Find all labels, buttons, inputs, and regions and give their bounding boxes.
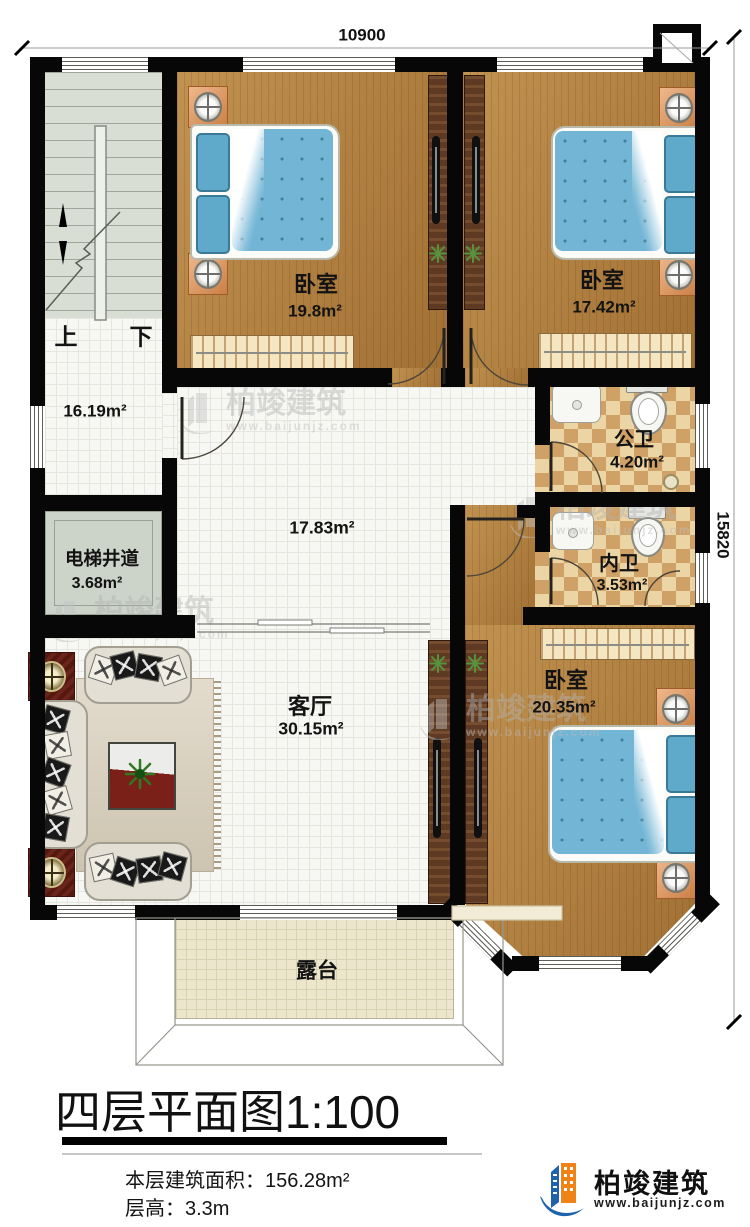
wall-private-bath-west [535, 507, 550, 552]
cushion [42, 785, 73, 816]
nightstand [188, 86, 228, 128]
wall-elevator-north [45, 495, 177, 511]
private-bath-door-gap [535, 552, 550, 607]
sink [552, 383, 601, 423]
label-stair-hall-area: 16.19m² [63, 403, 126, 422]
sheet-title: 四层平面图1:100 [55, 1076, 400, 1142]
bay-wall-bottom [512, 956, 648, 971]
mattress [232, 129, 333, 251]
floor-area-line: 本层建筑面积：156.28m² [125, 1164, 350, 1193]
wall-bedroom3-north [523, 607, 710, 625]
bed-bedroom3 [548, 725, 702, 863]
stairwell-floor [45, 72, 162, 318]
bed-bedroom1 [190, 124, 340, 260]
nightstand [659, 87, 699, 129]
floor-plan-page: 柏竣建筑 www.baijunjz.com 柏竣建筑 www.baijunjz.… [0, 0, 750, 1227]
dimension-top: 10900 [338, 27, 385, 46]
label-public-bath-name: 公卫 [614, 429, 654, 451]
title-underline-thin [62, 1153, 482, 1155]
window-right-public-bath [695, 404, 710, 468]
floor-drain [663, 474, 679, 490]
label-center-hall-area: 17.83m² [289, 518, 354, 537]
tv-cabinet-bedroom1 [428, 75, 449, 310]
pillow [664, 135, 698, 193]
label-terrace: 露台 [296, 959, 338, 982]
pillow [196, 195, 230, 254]
wall-right [695, 57, 710, 912]
wall-public-bath-west [535, 380, 550, 445]
wardrobe-bedroom3 [540, 628, 695, 660]
wall-between-bedrooms [447, 57, 463, 368]
bed-bedroom2 [551, 126, 700, 260]
label-private-bath-area: 3.53m² [597, 577, 648, 595]
brand-website: www.baijunjz.com [594, 1196, 726, 1210]
chimney-flue [662, 33, 692, 63]
tv [433, 738, 441, 838]
nightstand [656, 857, 696, 899]
pillow [196, 133, 230, 192]
label-bedroom1-name: 卧室 [294, 273, 338, 297]
label-stairs-down: 下 [130, 324, 153, 349]
tv [472, 136, 480, 224]
wall-elevator-east [162, 511, 177, 621]
nightstand [656, 688, 696, 730]
floor-height-line: 层高：3.3m [125, 1192, 229, 1221]
label-elevator-name: 电梯井道 [65, 549, 139, 569]
wall-bedrooms-south-b [528, 368, 710, 387]
terrace-sliding-door [240, 905, 397, 920]
floor-height-value: 3.3m [185, 1198, 229, 1220]
sofa-top [84, 646, 192, 704]
floor-area-label: 本层建筑面积： [125, 1170, 265, 1192]
tv [474, 738, 482, 838]
door-gap-wood-1 [392, 368, 441, 387]
wall-hall-east [450, 505, 465, 905]
mattress [552, 730, 664, 854]
tv-cabinet-bedroom2 [464, 75, 485, 310]
dimension-right: 15820 [713, 511, 732, 558]
tv-cabinet-living [428, 640, 451, 904]
sheet-title-scale: 1:100 [285, 1086, 400, 1138]
public-bath-door-gap [535, 445, 550, 492]
label-bedroom2-name: 卧室 [580, 269, 624, 293]
wall-stairs-east [162, 57, 177, 393]
nightstand [659, 254, 699, 296]
window-top-stairs [62, 57, 148, 72]
label-living-name: 客厅 [288, 695, 332, 719]
cushion [41, 813, 70, 842]
label-elevator-area: 3.68m² [72, 575, 123, 593]
wardrobe-bedroom1 [190, 335, 354, 369]
center-hall-floor-east [450, 387, 535, 505]
sink [552, 512, 594, 550]
door-gap-wood-2 [465, 368, 528, 387]
wardrobe-bedroom2 [538, 333, 692, 369]
window-right-private-bath [695, 553, 710, 603]
label-bedroom2-area: 17.42m² [572, 299, 635, 318]
tv-cabinet-bedroom3 [465, 640, 488, 904]
label-living-area: 30.15m² [278, 719, 343, 738]
door-gap-tile [162, 393, 177, 458]
tv [432, 136, 440, 224]
wall-corridor-stub [517, 505, 535, 518]
center-hall-floor [177, 387, 450, 638]
brand-logo-icon [538, 1156, 590, 1218]
window-bottom-living [57, 905, 135, 920]
window-top-bedroom2 [497, 57, 643, 72]
wall-bedrooms-south-a [162, 368, 392, 387]
mattress [555, 131, 662, 251]
title-underline-bar [62, 1137, 447, 1145]
label-private-bath-name: 内卫 [599, 553, 639, 575]
label-bedroom3-area: 20.35m² [532, 699, 595, 718]
pillow [664, 196, 698, 254]
bay-window-bottom [539, 956, 621, 971]
sofa-bottom [84, 842, 192, 901]
sheet-title-name: 四层平面图 [55, 1086, 285, 1138]
window-top-bedroom1 [243, 57, 395, 72]
floor-area-value: 156.28m² [265, 1170, 350, 1192]
label-bedroom3-name: 卧室 [544, 669, 588, 693]
chimney [653, 24, 701, 72]
wall-bedrooms-south-stub [441, 368, 465, 387]
wall-left [30, 57, 45, 920]
window-left-hall [30, 406, 45, 468]
label-public-bath-area: 4.20m² [610, 454, 664, 473]
wall-living-north [30, 615, 195, 638]
wall-bath-divider [535, 492, 710, 507]
label-stairs-up: 上 [55, 324, 78, 349]
label-bedroom1-area: 19.8m² [288, 303, 342, 322]
floor-height-label: 层高： [125, 1198, 185, 1220]
coffee-table [108, 742, 176, 810]
